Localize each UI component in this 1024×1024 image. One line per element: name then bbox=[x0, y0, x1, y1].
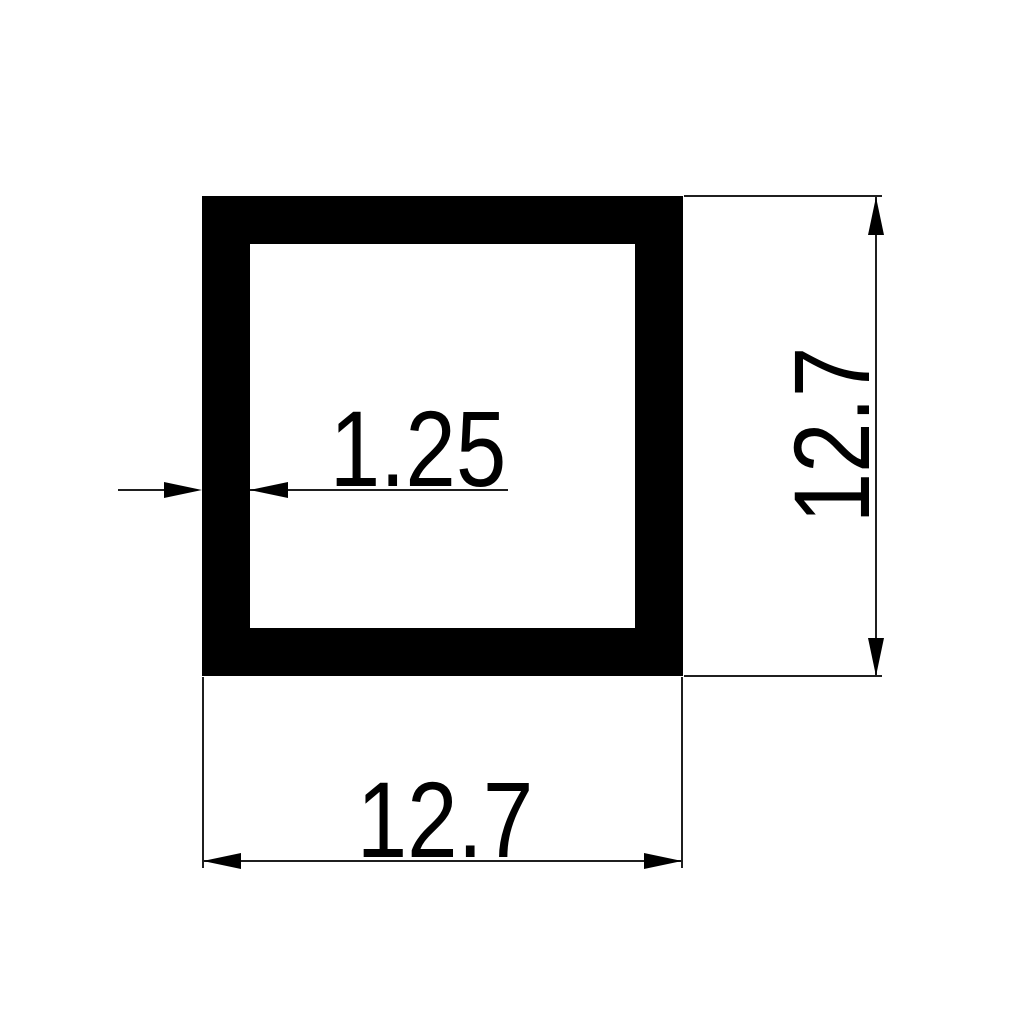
arrow-right-icon bbox=[164, 482, 202, 498]
drawing-canvas: 12.7 12.7 1.25 bbox=[0, 0, 1024, 1024]
wall-thickness-leader-left bbox=[118, 489, 166, 491]
wall-thickness-label: 1.25 bbox=[330, 395, 507, 503]
extension-line-bottom-right bbox=[681, 677, 683, 868]
extension-line-bottom-left bbox=[202, 677, 204, 868]
arrow-right-icon bbox=[644, 853, 682, 869]
arrow-left-icon bbox=[250, 482, 288, 498]
arrow-up-icon bbox=[868, 197, 884, 235]
arrow-left-icon bbox=[203, 853, 241, 869]
width-dimension-label: 12.7 bbox=[357, 766, 534, 874]
height-dimension-label: 12.7 bbox=[778, 347, 886, 524]
arrow-down-icon bbox=[868, 638, 884, 676]
extension-line-right-bottom bbox=[684, 675, 882, 677]
extension-line-right-top bbox=[684, 195, 882, 197]
